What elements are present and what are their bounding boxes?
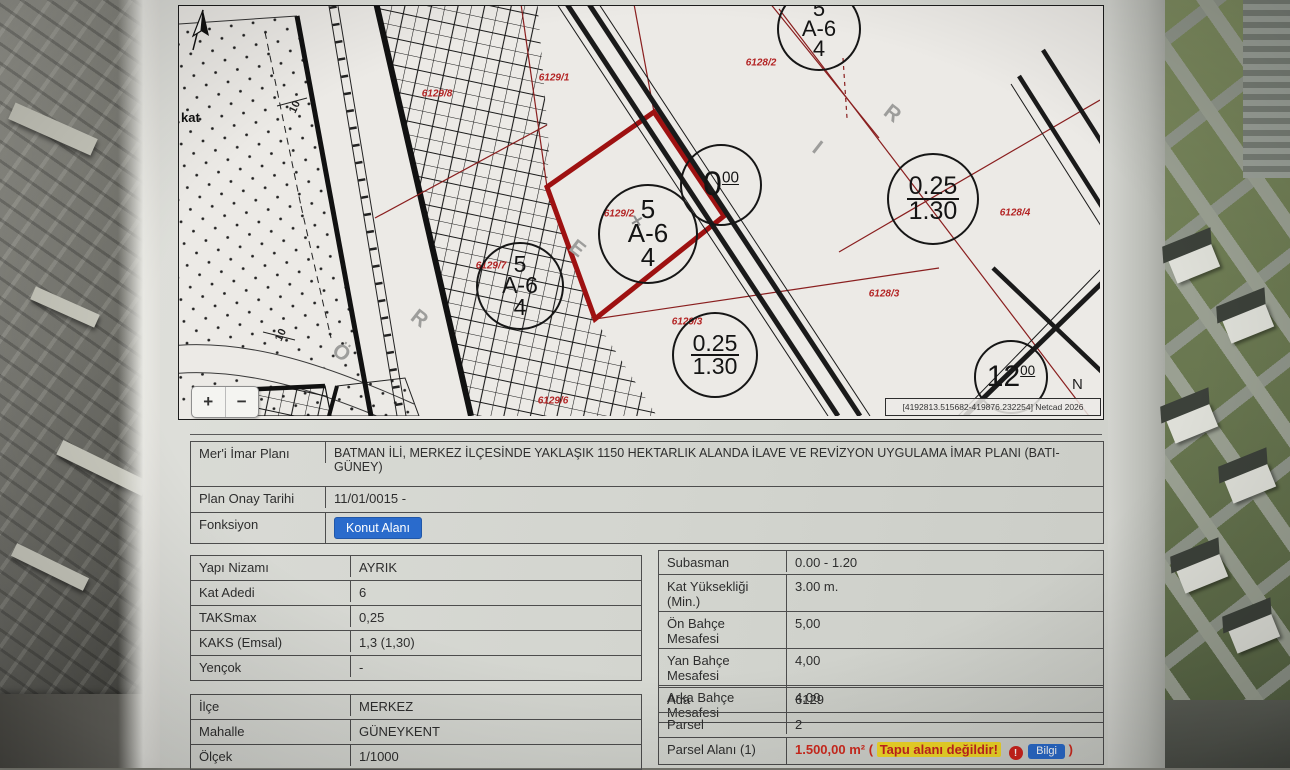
row-value: 5,00	[787, 612, 1103, 633]
row-label: Yençok	[191, 656, 351, 677]
row-value: 11/01/0015 -	[326, 487, 1103, 508]
row-value: 2	[787, 713, 1103, 734]
area-number: 1.500,00 m²	[795, 742, 865, 757]
row-value: 1/1000	[351, 745, 641, 766]
row-label: Parsel	[659, 713, 787, 734]
row-label: Yapı Nizamı	[191, 556, 351, 577]
paren: )	[1069, 742, 1073, 757]
parcel-label: 6128/3	[869, 289, 900, 300]
page-margin-right	[1108, 0, 1165, 768]
konut-alani-button[interactable]: Konut Alanı	[334, 517, 422, 539]
row-value: 6	[351, 581, 641, 602]
parcel-area-value: 1.500,00 m² ( Tapu alanı değildir! ! Bil…	[787, 740, 1103, 763]
row-value: MERKEZ	[351, 695, 641, 716]
zoom-in-button[interactable]: +	[192, 387, 226, 417]
row-label: Kat Yüksekliği (Min.)	[659, 575, 787, 611]
row-value: BATMAN İLİ, MERKEZ İLÇESİNDE YAKLAŞIK 11…	[326, 442, 1103, 476]
zoning-circle-ratio: 0.251.30	[887, 153, 979, 245]
row-label: Fonksiyon	[191, 513, 326, 543]
row-label: Ada	[659, 688, 787, 709]
parcel-label: 6128/2	[746, 58, 777, 69]
plan-info-table: Mer'i İmar Planı BATMAN İLİ, MERKEZ İLÇE…	[190, 441, 1104, 544]
tapu-warning-badge: Tapu alanı değildir!	[877, 742, 1001, 757]
table-row: Plan Onay Tarihi 11/01/0015 -	[191, 487, 1103, 513]
row-value: 6129	[787, 688, 1103, 709]
building-rules-table: Yapı NizamıAYRIK Kat Adedi6 TAKSmax0,25 …	[190, 555, 642, 681]
zoning-map[interactable]: kat 10 10 Ö R E I R 6129/8 6129/1 6128/2…	[178, 5, 1104, 420]
row-label: KAKS (Emsal)	[191, 631, 351, 652]
map-text-kat: kat	[181, 110, 200, 125]
table-row: Mer'i İmar Planı BATMAN İLİ, MERKEZ İLÇE…	[191, 442, 1103, 487]
zoning-circle-ratio: 0.251.30	[672, 312, 758, 398]
parcel-query-panel: kat 10 10 Ö R E I R 6129/8 6129/1 6128/2…	[160, 0, 1108, 768]
parcel-label: 6129/6	[538, 396, 569, 407]
row-label: İlçe	[191, 695, 351, 716]
row-label: Parsel Alanı (1)	[659, 738, 787, 764]
row-value: 0,25	[351, 606, 641, 627]
paren: (	[869, 742, 873, 757]
row-value: 3.00 m.	[787, 575, 1103, 596]
parcel-label: 6129/8	[422, 89, 453, 100]
info-icon: !	[1009, 746, 1023, 760]
row-label: Yan Bahçe Mesafesi	[659, 649, 787, 685]
elevation-circle: 000	[680, 144, 762, 226]
row-label: TAKSmax	[191, 606, 351, 627]
map-coordinates-credit: [4192813.515682-419876.232254] Netcad 20…	[885, 398, 1101, 416]
row-value: GÜNEYKENT	[351, 720, 641, 741]
row-label: Subasman	[659, 551, 787, 572]
parcel-label: 6128/4	[1000, 208, 1031, 219]
row-label: Mer'i İmar Planı	[191, 442, 326, 463]
background-photo-suburb-render	[1165, 0, 1290, 768]
page-edge-highlight	[118, 0, 164, 768]
north-label: N	[1072, 376, 1083, 393]
row-label: Mahalle	[191, 720, 351, 741]
row-value: 0.00 - 1.20	[787, 551, 1103, 572]
row-value: 1,3 (1,30)	[351, 631, 641, 652]
north-arrow-icon	[179, 6, 219, 58]
row-label: Ön Bahçe Mesafesi	[659, 612, 787, 648]
parcel-table: Ada6129 Parsel2 Parsel Alanı (1) 1.500,0…	[658, 687, 1104, 765]
zoom-out-button[interactable]: −	[226, 387, 259, 417]
map-zoom-control: + −	[191, 386, 259, 418]
tower-building	[1243, 0, 1290, 178]
zoning-circle-abc: 5A-64	[476, 242, 564, 330]
divider	[190, 434, 1102, 435]
row-value: AYRIK	[351, 556, 641, 577]
row-value: -	[351, 656, 641, 677]
parcel-label: 6129/1	[539, 73, 570, 84]
row-label: Kat Adedi	[191, 581, 351, 602]
bilgi-button[interactable]: Bilgi	[1028, 744, 1065, 759]
table-row: Fonksiyon Konut Alanı	[191, 513, 1103, 544]
row-value: 4,00	[787, 649, 1103, 670]
row-label: Plan Onay Tarihi	[191, 487, 326, 508]
row-label: Ölçek	[191, 745, 351, 766]
location-table: İlçeMERKEZ MahalleGÜNEYKENT Ölçek1/1000	[190, 694, 642, 770]
